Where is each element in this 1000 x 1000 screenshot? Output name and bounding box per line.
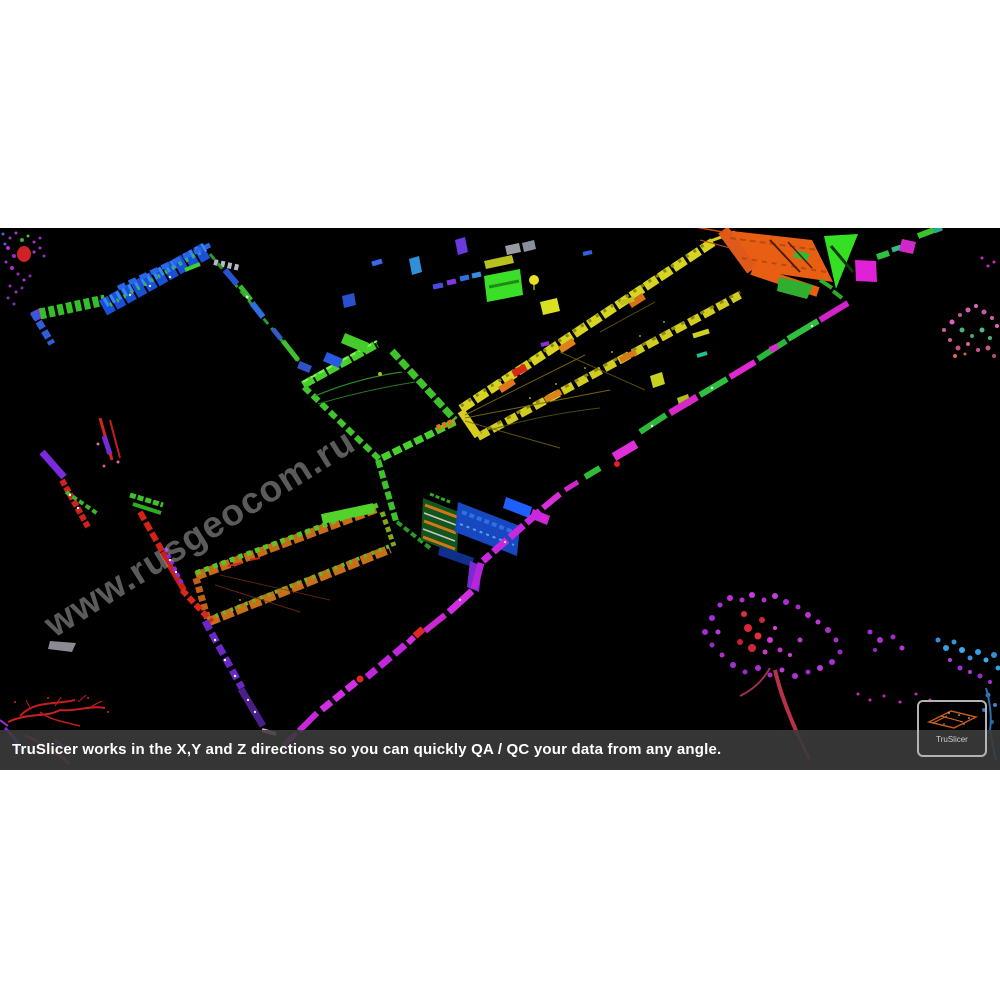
truslicer-mini-preview-icon — [919, 702, 985, 732]
right-pink-tree — [942, 304, 999, 358]
west-wall-chain — [33, 312, 263, 726]
green-room — [297, 333, 455, 459]
truslicer-thumbnail-label: TruSlicer — [919, 732, 985, 748]
caption-text: TruSlicer works in the X,Y and Z directi… — [0, 730, 1000, 770]
point-cloud-viewport[interactable] — [0, 228, 1000, 770]
caption-bar: TruSlicer works in the X,Y and Z directi… — [0, 730, 1000, 770]
truslicer-thumbnail-button[interactable]: TruSlicer — [917, 700, 987, 757]
screenshot-canvas: www.rusgeocom.ru TruSlicer works in the … — [0, 0, 1000, 1000]
top-left-wall — [33, 245, 240, 317]
orange-room — [196, 505, 394, 622]
blue-room — [378, 460, 550, 592]
point-cloud-render — [0, 228, 1000, 770]
ne-wall-chain — [210, 254, 307, 371]
green-triangle-chain — [820, 228, 942, 298]
top-left-tree — [2, 232, 46, 306]
